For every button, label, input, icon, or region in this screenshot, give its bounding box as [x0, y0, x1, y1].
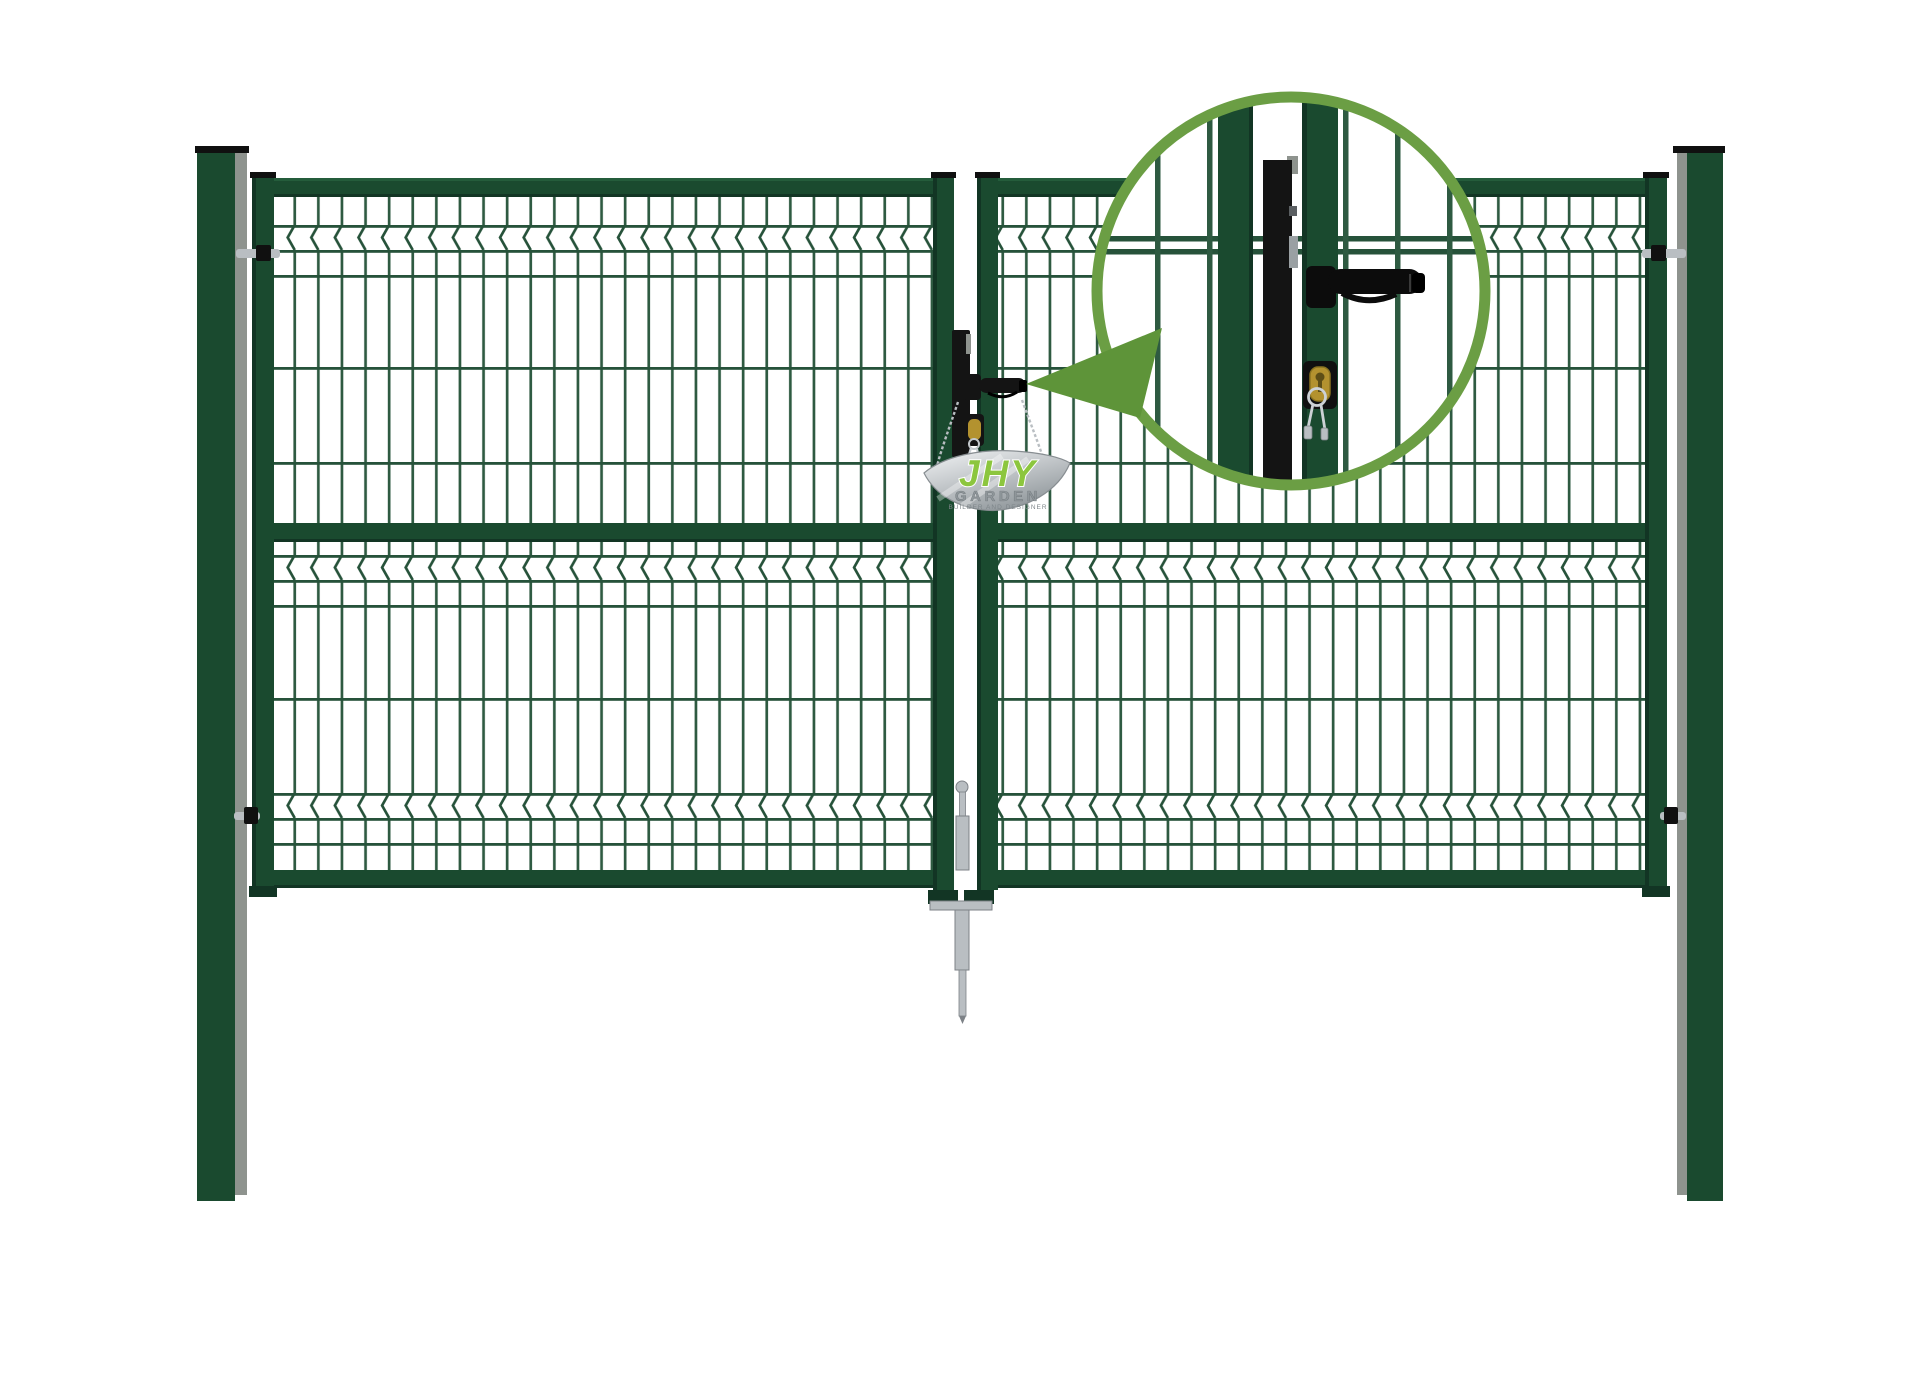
- left-post-body: [197, 153, 235, 1201]
- stile-cap: [250, 172, 276, 178]
- crimp-band: [997, 793, 1647, 818]
- magnified-latch: [1289, 236, 1298, 268]
- drop-bolt-knob: [956, 781, 968, 793]
- crimp-band: [273, 555, 935, 580]
- handle-end-cap: [1019, 380, 1027, 392]
- left-post-edge: [235, 153, 247, 1195]
- latch-plate: [966, 334, 971, 354]
- crimp-band: [273, 225, 935, 250]
- right-post-cap: [1673, 146, 1725, 153]
- foot-crossbar: [930, 901, 992, 910]
- crimp-band: [997, 555, 1647, 580]
- handle-hub: [963, 374, 981, 400]
- magnified-lock-body: [1263, 160, 1292, 490]
- left-post-cap: [195, 146, 249, 153]
- drop-bolt-sleeve: [955, 910, 969, 970]
- right-post: [1673, 146, 1725, 1201]
- stile-cap: [975, 172, 1000, 178]
- left-post: [195, 146, 249, 1201]
- screenshot: JHY GARDEN BUILDER AND DESIGNER: [0, 0, 1920, 1374]
- stile-foot: [1642, 886, 1670, 897]
- stile-cap: [1643, 172, 1669, 178]
- logo-word-text: GARDEN: [955, 488, 1041, 505]
- gate-illustration: JHY GARDEN BUILDER AND DESIGNER: [0, 0, 1920, 1374]
- right-post-body: [1687, 153, 1723, 1201]
- logo-tagline-text: BUILDER AND DESIGNER: [948, 504, 1047, 511]
- left-gate-leaf: [249, 172, 956, 897]
- lever-handle: [979, 378, 1026, 393]
- magnified-left-stile: [1218, 99, 1253, 489]
- drop-bolt-rod: [959, 970, 966, 1016]
- stile-cap: [931, 172, 956, 178]
- stile-foot: [249, 886, 277, 897]
- right-post-edge: [1677, 153, 1687, 1195]
- drop-bolt-guide: [956, 816, 969, 870]
- detail-callout: [1095, 97, 1491, 490]
- crimp-band: [273, 793, 935, 818]
- key-cylinder: [968, 419, 981, 440]
